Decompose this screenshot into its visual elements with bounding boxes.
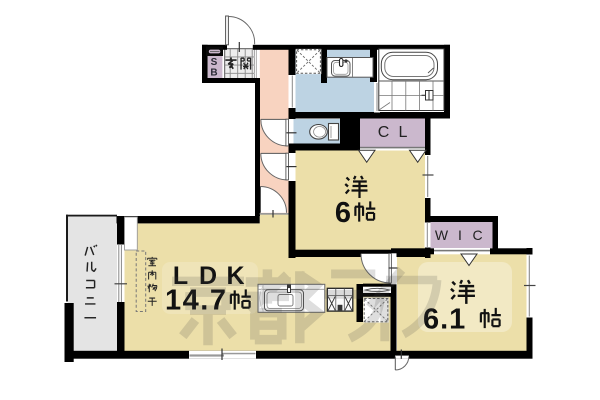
svg-text:S: S — [211, 57, 218, 68]
svg-text:B: B — [210, 68, 217, 79]
svg-text:6: 6 — [335, 197, 351, 229]
svg-text:L: L — [399, 124, 408, 141]
svg-text:C: C — [472, 227, 482, 243]
svg-text:C: C — [378, 124, 390, 141]
svg-text:W: W — [435, 227, 449, 243]
svg-text:I: I — [458, 227, 462, 243]
